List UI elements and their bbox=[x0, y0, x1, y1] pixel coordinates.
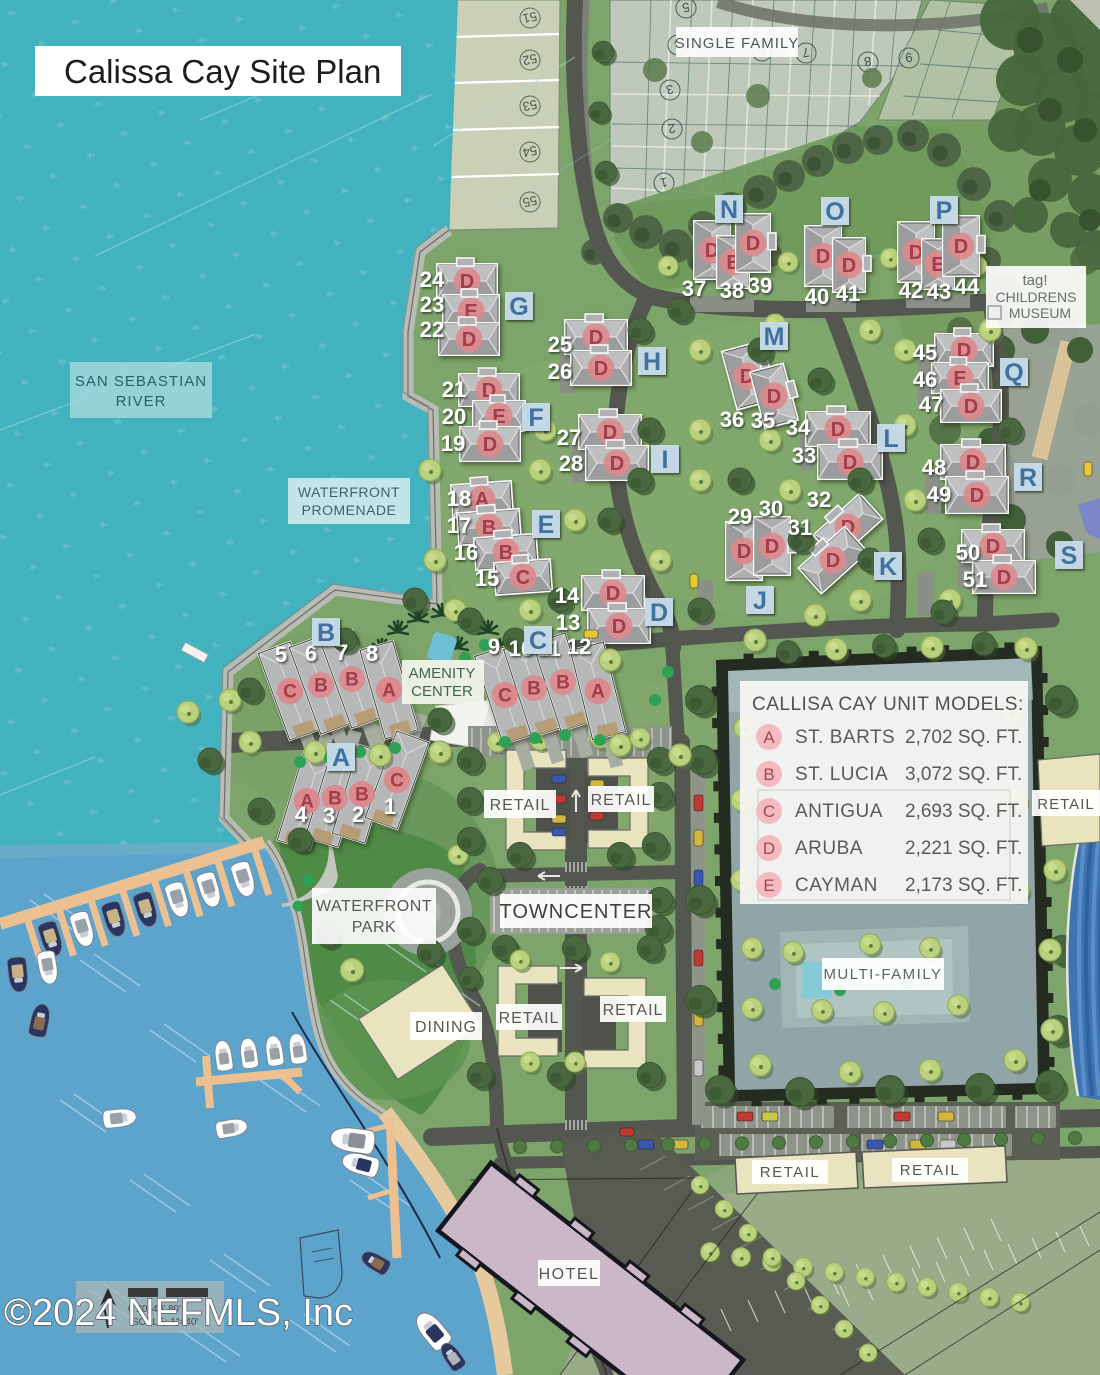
svg-text:1: 1 bbox=[384, 794, 396, 819]
svg-text:51: 51 bbox=[521, 9, 538, 27]
svg-text:ST. LUCIA: ST. LUCIA bbox=[795, 764, 888, 785]
svg-text:D: D bbox=[462, 329, 476, 351]
svg-text:D: D bbox=[606, 583, 620, 605]
svg-text:O: O bbox=[825, 198, 844, 226]
svg-text:35: 35 bbox=[751, 408, 775, 433]
svg-text:13: 13 bbox=[556, 610, 580, 635]
svg-text:C: C bbox=[763, 802, 775, 821]
svg-text:B: B bbox=[317, 619, 335, 647]
svg-text:2,221 SQ. FT.: 2,221 SQ. FT. bbox=[905, 838, 1022, 859]
svg-text:3,072 SQ. FT.: 3,072 SQ. FT. bbox=[905, 764, 1022, 785]
svg-text:2,693 SQ. FT.: 2,693 SQ. FT. bbox=[905, 801, 1022, 822]
svg-text:CAYMAN: CAYMAN bbox=[795, 875, 878, 896]
svg-text:TOWNCENTER: TOWNCENTER bbox=[500, 901, 653, 923]
svg-text:D: D bbox=[650, 599, 668, 627]
svg-text:RETAIL: RETAIL bbox=[900, 1162, 960, 1179]
svg-text:PARK: PARK bbox=[352, 919, 396, 936]
svg-text:ST. BARTS: ST. BARTS bbox=[795, 727, 895, 748]
svg-text:tag!: tag! bbox=[1022, 272, 1047, 289]
svg-text:D: D bbox=[737, 541, 751, 563]
svg-text:C: C bbox=[498, 686, 512, 707]
svg-text:21: 21 bbox=[442, 377, 466, 402]
svg-text:44: 44 bbox=[955, 274, 980, 299]
svg-text:WATERFRONT: WATERFRONT bbox=[298, 484, 400, 500]
svg-text:36: 36 bbox=[720, 407, 744, 432]
svg-text:30: 30 bbox=[759, 496, 783, 521]
svg-text:N: N bbox=[720, 196, 738, 224]
svg-text:R: R bbox=[1019, 464, 1037, 492]
svg-text:RETAIL: RETAIL bbox=[490, 797, 551, 814]
svg-text:MULTI-FAMILY: MULTI-FAMILY bbox=[823, 966, 942, 983]
svg-text:AMENITY: AMENITY bbox=[409, 665, 476, 682]
svg-text:RETAIL: RETAIL bbox=[603, 1002, 664, 1019]
svg-text:HOTEL: HOTEL bbox=[539, 1266, 600, 1283]
svg-text:B: B bbox=[763, 765, 774, 784]
svg-text:©2024 NEFMLS, Inc: ©2024 NEFMLS, Inc bbox=[4, 1292, 353, 1334]
svg-text:47: 47 bbox=[919, 392, 943, 417]
svg-text:K: K bbox=[879, 553, 897, 581]
svg-text:19: 19 bbox=[441, 431, 465, 456]
svg-text:23: 23 bbox=[420, 292, 444, 317]
svg-text:RETAIL: RETAIL bbox=[499, 1010, 560, 1027]
svg-text:F: F bbox=[528, 404, 543, 432]
svg-text:D: D bbox=[610, 453, 624, 475]
svg-text:29: 29 bbox=[728, 504, 752, 529]
svg-text:D: D bbox=[765, 536, 779, 558]
svg-text:12: 12 bbox=[567, 634, 591, 659]
svg-text:D: D bbox=[483, 434, 497, 456]
svg-text:Q: Q bbox=[1004, 359, 1023, 387]
svg-text:22: 22 bbox=[420, 317, 444, 342]
svg-text:D: D bbox=[612, 616, 626, 638]
svg-text:2,173 SQ. FT.: 2,173 SQ. FT. bbox=[905, 875, 1022, 896]
svg-text:C: C bbox=[529, 627, 547, 655]
svg-text:15: 15 bbox=[475, 566, 499, 591]
svg-text:43: 43 bbox=[927, 279, 951, 304]
svg-text:CHILDRENS: CHILDRENS bbox=[996, 289, 1077, 305]
svg-text:D: D bbox=[763, 839, 775, 858]
svg-text:RETAIL: RETAIL bbox=[591, 792, 652, 809]
svg-text:D: D bbox=[826, 550, 840, 572]
svg-text:24: 24 bbox=[420, 267, 445, 292]
svg-text:D: D bbox=[594, 358, 608, 380]
svg-text:C: C bbox=[283, 682, 297, 703]
svg-text:E: E bbox=[763, 876, 774, 895]
svg-text:31: 31 bbox=[788, 515, 812, 540]
svg-text:S: S bbox=[1061, 542, 1078, 570]
svg-text:D: D bbox=[964, 396, 978, 418]
svg-text:17: 17 bbox=[447, 513, 471, 538]
svg-text:14: 14 bbox=[555, 583, 580, 608]
svg-text:32: 32 bbox=[807, 487, 831, 512]
svg-text:D: D bbox=[767, 386, 781, 408]
svg-text:RIVER: RIVER bbox=[116, 393, 167, 410]
svg-text:B: B bbox=[527, 679, 541, 700]
svg-text:B: B bbox=[556, 673, 570, 694]
svg-text:MUSEUM: MUSEUM bbox=[1009, 305, 1071, 321]
svg-text:A: A bbox=[332, 744, 350, 772]
svg-text:16: 16 bbox=[454, 540, 478, 565]
svg-text:50: 50 bbox=[956, 540, 980, 565]
svg-text:49: 49 bbox=[927, 482, 951, 507]
svg-text:52: 52 bbox=[521, 51, 538, 69]
svg-text:WATERFRONT: WATERFRONT bbox=[316, 898, 432, 915]
svg-text:40: 40 bbox=[805, 284, 829, 309]
svg-text:37: 37 bbox=[682, 276, 706, 301]
svg-text:18: 18 bbox=[447, 486, 471, 511]
svg-text:53: 53 bbox=[521, 97, 538, 115]
svg-text:DINING: DINING bbox=[415, 1019, 477, 1036]
svg-text:2,702 SQ. FT.: 2,702 SQ. FT. bbox=[905, 727, 1022, 748]
svg-text:5: 5 bbox=[275, 642, 287, 667]
svg-text:D: D bbox=[746, 233, 760, 255]
svg-text:D: D bbox=[816, 246, 830, 268]
svg-text:8: 8 bbox=[366, 641, 378, 666]
svg-text:B: B bbox=[345, 670, 359, 691]
svg-text:D: D bbox=[997, 567, 1011, 589]
svg-text:A: A bbox=[591, 682, 605, 703]
svg-text:3: 3 bbox=[323, 803, 335, 828]
svg-text:RETAIL: RETAIL bbox=[760, 1164, 820, 1181]
svg-text:C: C bbox=[390, 771, 404, 792]
svg-text:46: 46 bbox=[913, 367, 937, 392]
svg-text:D: D bbox=[970, 485, 984, 507]
svg-text:33: 33 bbox=[792, 443, 816, 468]
svg-text:E: E bbox=[538, 511, 555, 539]
svg-text:54: 54 bbox=[521, 143, 538, 161]
svg-text:H: H bbox=[643, 348, 661, 376]
svg-text:9: 9 bbox=[488, 634, 500, 659]
svg-text:D: D bbox=[842, 255, 856, 277]
svg-text:34: 34 bbox=[786, 415, 811, 440]
svg-text:51: 51 bbox=[963, 567, 987, 592]
svg-text:39: 39 bbox=[748, 273, 772, 298]
svg-text:B: B bbox=[499, 542, 513, 564]
svg-text:A: A bbox=[763, 728, 775, 747]
svg-text:20: 20 bbox=[442, 404, 466, 429]
svg-text:L: L bbox=[883, 425, 898, 453]
svg-text:G: G bbox=[509, 293, 528, 321]
svg-text:ARUBA: ARUBA bbox=[795, 838, 863, 859]
svg-text:CALLISA CAY UNIT MODELS:: CALLISA CAY UNIT MODELS: bbox=[752, 694, 1024, 715]
svg-text:26: 26 bbox=[548, 359, 572, 384]
svg-text:D: D bbox=[831, 419, 845, 441]
svg-text:C: C bbox=[516, 567, 530, 589]
svg-text:RETAIL: RETAIL bbox=[1037, 796, 1094, 813]
svg-text:41: 41 bbox=[836, 281, 860, 306]
svg-text:SAN SEBASTIAN: SAN SEBASTIAN bbox=[75, 373, 207, 390]
svg-text:SINGLE FAMILY: SINGLE FAMILY bbox=[675, 35, 799, 52]
svg-text:45: 45 bbox=[913, 340, 937, 365]
svg-text:25: 25 bbox=[548, 332, 572, 357]
svg-text:I: I bbox=[662, 446, 669, 474]
svg-text:A: A bbox=[382, 681, 396, 702]
svg-text:P: P bbox=[936, 197, 953, 225]
svg-text:Calissa Cay Site Plan: Calissa Cay Site Plan bbox=[64, 53, 381, 90]
svg-text:D: D bbox=[954, 236, 968, 258]
svg-text:ANTIGUA: ANTIGUA bbox=[795, 801, 883, 822]
svg-text:CENTER: CENTER bbox=[411, 683, 473, 700]
svg-text:M: M bbox=[764, 323, 785, 351]
svg-text:48: 48 bbox=[922, 455, 946, 480]
svg-text:B: B bbox=[314, 676, 328, 697]
svg-text:27: 27 bbox=[557, 425, 581, 450]
svg-text:28: 28 bbox=[559, 451, 583, 476]
svg-text:4: 4 bbox=[295, 802, 308, 827]
svg-text:55: 55 bbox=[521, 193, 538, 211]
svg-text:42: 42 bbox=[899, 278, 923, 303]
svg-text:PROMENADE: PROMENADE bbox=[302, 502, 397, 518]
svg-text:38: 38 bbox=[720, 278, 744, 303]
svg-text:J: J bbox=[753, 587, 767, 615]
svg-text:2: 2 bbox=[352, 802, 364, 827]
